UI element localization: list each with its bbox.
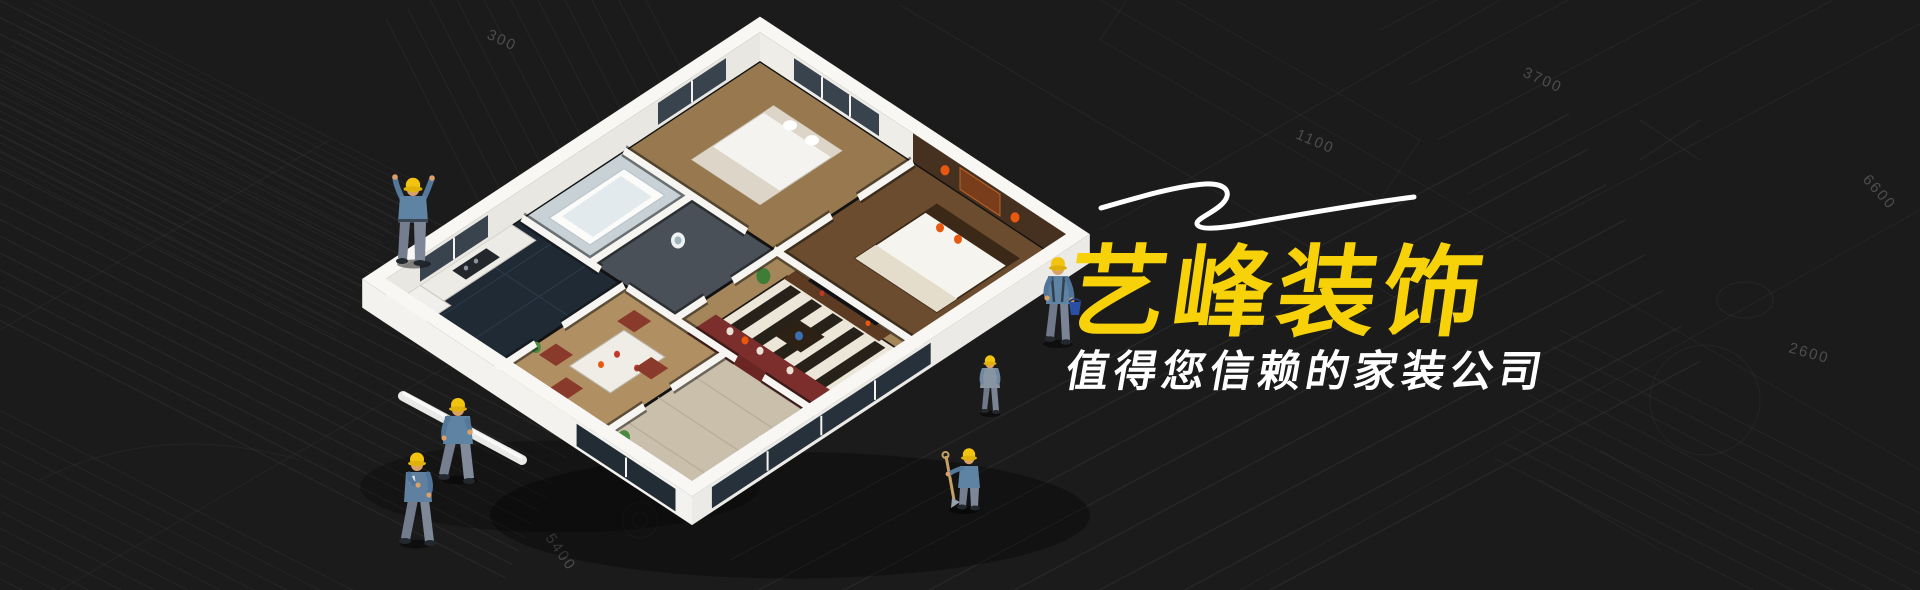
washing-machine [671, 232, 685, 248]
company-name: 艺峰装饰 [1061, 243, 1495, 342]
hero-banner: 300 1100 3700 6600 2600 5400 [0, 0, 1920, 590]
company-tagline: 值得您信赖的家装公司 [1062, 349, 1550, 396]
banner-scene: 300 1100 3700 6600 2600 5400 [0, 0, 1920, 590]
lantern [941, 165, 950, 175]
lantern [1011, 212, 1020, 222]
